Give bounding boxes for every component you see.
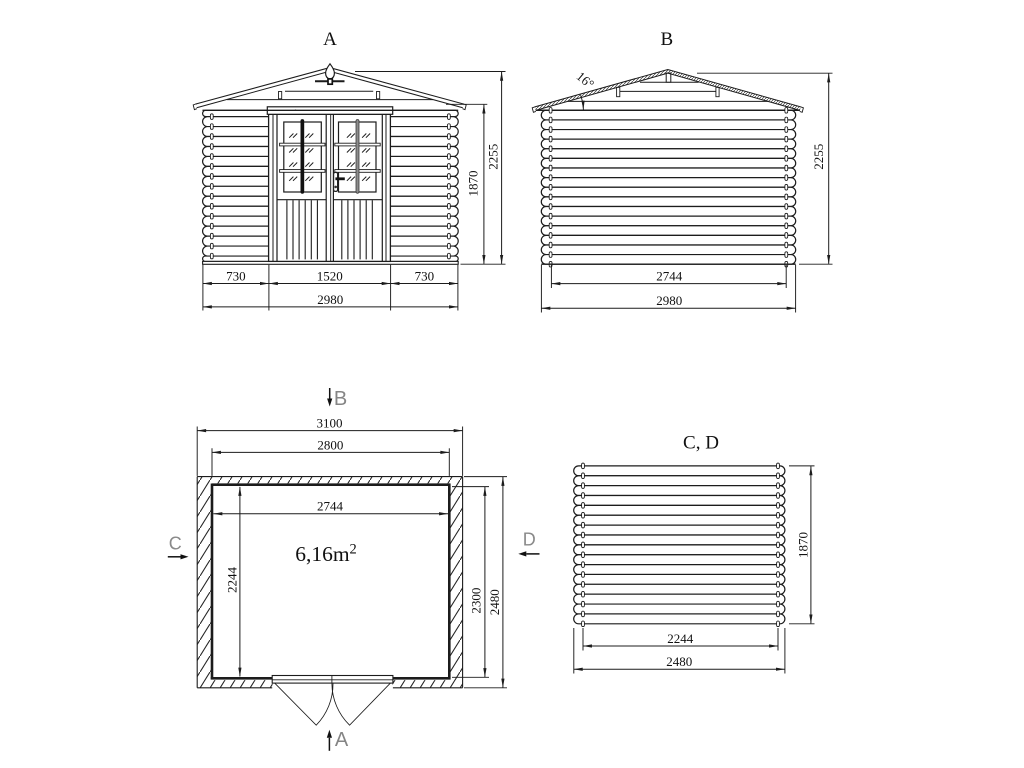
svg-text:2255: 2255	[811, 144, 826, 170]
svg-text:2255: 2255	[485, 144, 500, 170]
svg-text:1870: 1870	[465, 171, 480, 197]
svg-text:2244: 2244	[667, 631, 694, 646]
svg-text:2980: 2980	[317, 292, 343, 307]
svg-text:730: 730	[226, 269, 246, 284]
svg-text:2244: 2244	[224, 567, 239, 594]
svg-text:2300: 2300	[468, 588, 483, 614]
svg-text:2800: 2800	[317, 437, 343, 452]
svg-text:3100: 3100	[317, 416, 343, 431]
svg-text:2480: 2480	[487, 589, 502, 615]
svg-text:C, D: C, D	[683, 432, 719, 453]
svg-text:1520: 1520	[317, 269, 343, 284]
svg-text:2480: 2480	[666, 654, 692, 669]
svg-text:2744: 2744	[656, 269, 683, 284]
svg-text:B: B	[334, 388, 347, 410]
svg-text:C: C	[169, 534, 182, 554]
svg-text:730: 730	[415, 269, 435, 284]
svg-text:B: B	[660, 29, 673, 50]
svg-text:2744: 2744	[317, 499, 344, 514]
svg-text:6,16m2: 6,16m2	[295, 542, 357, 567]
svg-text:1870: 1870	[795, 532, 810, 558]
svg-text:D: D	[523, 530, 536, 550]
svg-text:2980: 2980	[656, 293, 682, 308]
svg-text:A: A	[335, 729, 349, 751]
svg-text:16°: 16°	[574, 68, 598, 91]
svg-text:A: A	[323, 29, 337, 50]
